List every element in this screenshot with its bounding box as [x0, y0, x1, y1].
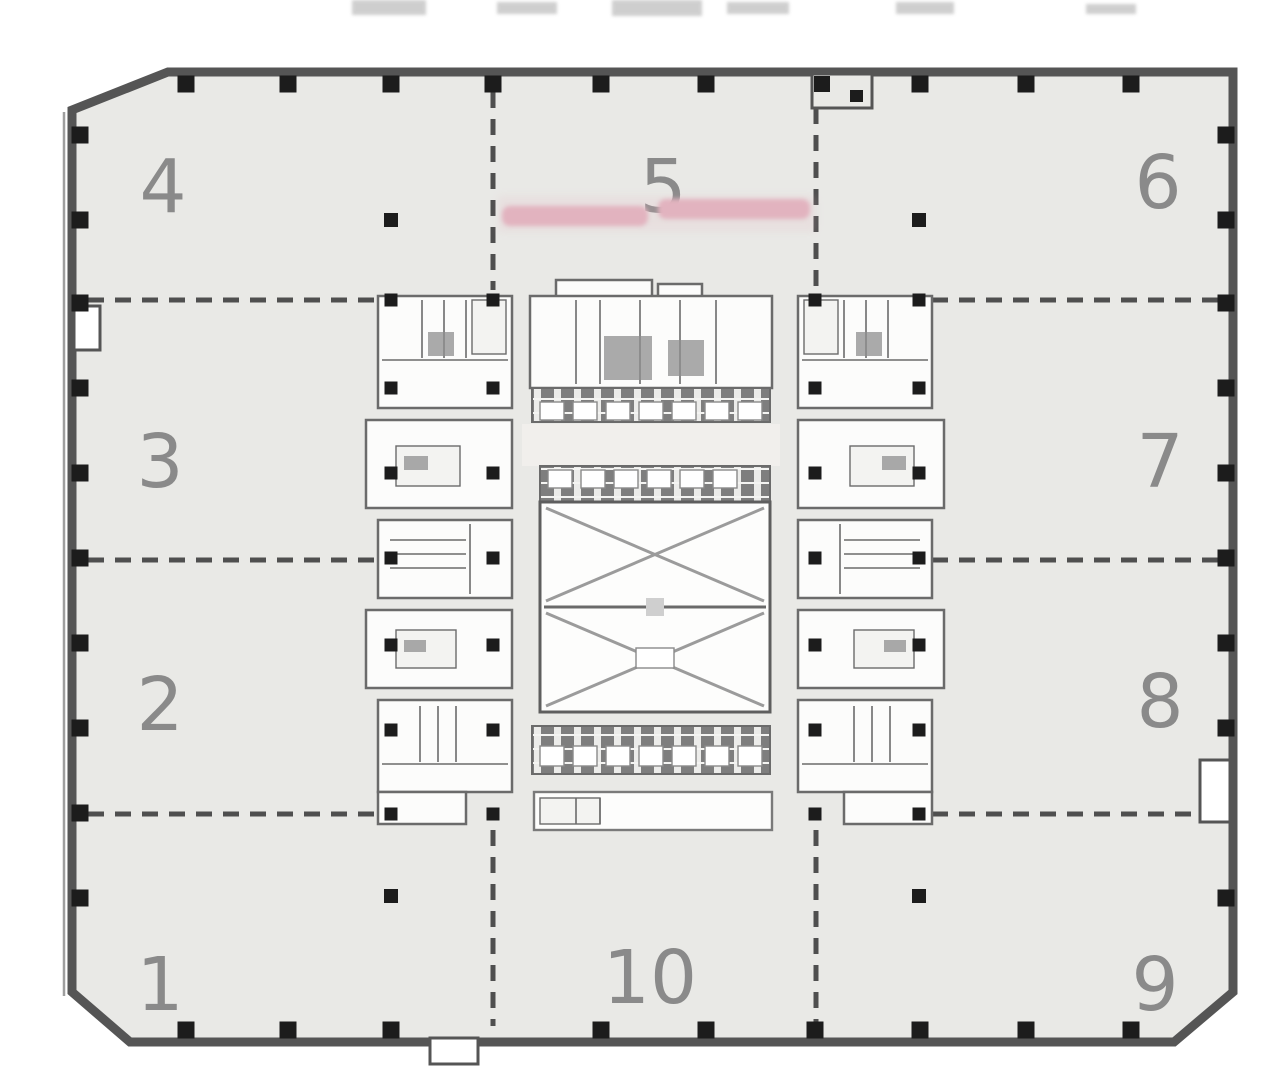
core-column — [913, 294, 926, 307]
perimeter-column — [1218, 550, 1235, 567]
zone-label-6: 6 — [1134, 140, 1181, 226]
core-column — [487, 639, 500, 652]
core — [366, 280, 944, 830]
perimeter-column — [1218, 127, 1235, 144]
core-column — [487, 724, 500, 737]
elevator-cabs-upper — [540, 402, 762, 420]
core-column — [487, 552, 500, 565]
core-column — [809, 808, 822, 821]
core-column — [913, 808, 926, 821]
perimeter-column — [1218, 890, 1235, 907]
core-column — [487, 294, 500, 307]
wall-niche-right — [1200, 760, 1230, 822]
elevator-lobby-corridor — [522, 424, 780, 466]
core-column — [385, 724, 398, 737]
wall-niche-left — [74, 306, 100, 350]
perimeter-column — [698, 1022, 715, 1039]
perimeter-column — [1218, 380, 1235, 397]
perimeter-column — [1018, 76, 1035, 93]
core-center — [522, 280, 780, 830]
perimeter-column — [72, 465, 89, 482]
core-column — [487, 382, 500, 395]
zone-label-4: 4 — [139, 144, 186, 230]
pink-annotation-left — [502, 206, 648, 226]
perimeter-column — [1018, 1022, 1035, 1039]
perimeter-column — [1218, 720, 1235, 737]
core-column — [385, 382, 398, 395]
bottom-wall-tab — [430, 1038, 478, 1064]
perimeter-column — [72, 805, 89, 822]
top-edge-artifacts — [352, 0, 1136, 16]
core-column — [913, 639, 926, 652]
interior-column — [912, 889, 926, 903]
zone-label-8: 8 — [1136, 659, 1183, 745]
core-column — [809, 382, 822, 395]
zone-label-3: 3 — [136, 419, 183, 505]
interior-column — [384, 213, 398, 227]
perimeter-column — [1218, 212, 1235, 229]
interior-column — [384, 889, 398, 903]
zone-label-9: 9 — [1131, 942, 1178, 1028]
core-column — [809, 467, 822, 480]
core-column — [809, 639, 822, 652]
perimeter-column — [72, 127, 89, 144]
zone-label-10: 10 — [603, 935, 697, 1021]
perimeter-column — [1218, 465, 1235, 482]
core-column — [487, 467, 500, 480]
core-column — [385, 552, 398, 565]
floor-plan-page: 4 5 6 3 7 2 8 1 10 9 — [0, 0, 1280, 1074]
pink-annotations — [498, 196, 816, 232]
core-column — [913, 467, 926, 480]
perimeter-column — [1218, 635, 1235, 652]
perimeter-column — [72, 635, 89, 652]
perimeter-column — [72, 380, 89, 397]
perimeter-column — [72, 720, 89, 737]
core-column — [385, 639, 398, 652]
core-column — [913, 724, 926, 737]
perimeter-column — [383, 1022, 400, 1039]
zone-label-2: 2 — [136, 662, 183, 748]
perimeter-column — [485, 76, 502, 93]
notch-column — [850, 90, 863, 102]
perimeter-column — [1123, 76, 1140, 93]
core-column — [809, 724, 822, 737]
perimeter-column — [912, 1022, 929, 1039]
perimeter-column — [698, 76, 715, 93]
interior-column — [912, 213, 926, 227]
perimeter-column — [593, 1022, 610, 1039]
perimeter-column — [593, 76, 610, 93]
perimeter-column — [912, 76, 929, 93]
core-column — [487, 808, 500, 821]
floor-plan-canvas: 4 5 6 3 7 2 8 1 10 9 — [0, 0, 1280, 1074]
perimeter-column — [383, 76, 400, 93]
core-column — [385, 467, 398, 480]
perimeter-column — [1218, 295, 1235, 312]
perimeter-column — [72, 550, 89, 567]
shaft-center-plate — [646, 598, 664, 616]
notch-column — [814, 76, 830, 92]
pink-annotation-right — [658, 199, 810, 219]
perimeter-column — [280, 1022, 297, 1039]
core-column — [913, 382, 926, 395]
perimeter-column — [72, 890, 89, 907]
core-column — [809, 294, 822, 307]
perimeter-column — [72, 212, 89, 229]
core-column — [385, 808, 398, 821]
core-column — [913, 552, 926, 565]
perimeter-column — [807, 1022, 824, 1039]
elevator-cabs-bottom — [540, 746, 762, 766]
perimeter-column — [72, 295, 89, 312]
core-column — [385, 294, 398, 307]
zone-label-7: 7 — [1136, 419, 1183, 505]
perimeter-column — [178, 76, 195, 93]
zone-label-1: 1 — [136, 942, 183, 1028]
perimeter-column — [280, 76, 297, 93]
core-column — [809, 552, 822, 565]
